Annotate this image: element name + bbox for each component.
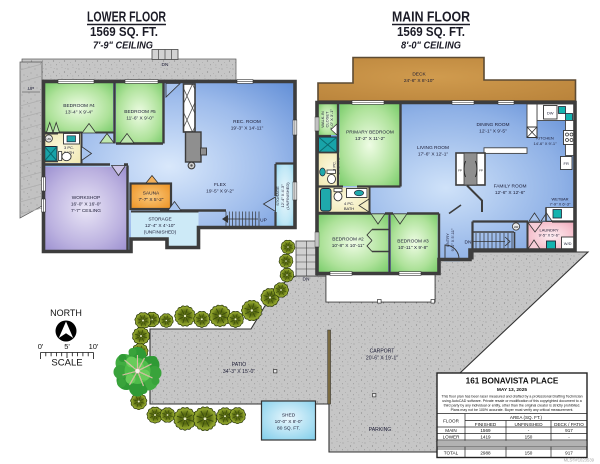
svg-text:2988: 2988: [480, 451, 491, 456]
svg-text:HW: HW: [514, 225, 519, 229]
svg-text:WORKSHOP: WORKSHOP: [72, 195, 101, 201]
svg-text:150: 150: [525, 435, 533, 440]
svg-text:BEDROOM #2: BEDROOM #2: [332, 237, 364, 243]
svg-text:(UNFINISHED): (UNFINISHED): [144, 230, 177, 236]
svg-text:DN: DN: [465, 240, 472, 246]
svg-text:7'-9" X 6'-3": 7'-9" X 6'-3": [550, 202, 571, 207]
svg-text:PARKING: PARKING: [369, 427, 392, 433]
svg-text:13'-4" X 9'-4": 13'-4" X 9'-4": [65, 110, 93, 116]
svg-text:FP: FP: [479, 169, 483, 173]
svg-text:MAIN: MAIN: [445, 428, 456, 433]
svg-text:STORAGE: STORAGE: [148, 217, 171, 223]
svg-text:9'-0" X 5'-11": 9'-0" X 5'-11": [450, 228, 455, 251]
svg-text:34'-3" X 15'-0": 34'-3" X 15'-0": [223, 369, 255, 375]
svg-text:FR: FR: [564, 161, 569, 166]
svg-text:BATH: BATH: [344, 206, 354, 211]
svg-text:PRIMARY BEDROOM: PRIMARY BEDROOM: [346, 130, 394, 136]
svg-text:11'-6" X 9'-0": 11'-6" X 9'-0": [126, 116, 154, 122]
svg-text:MAY 13, 2025: MAY 13, 2025: [497, 387, 527, 393]
svg-text:SCALE: SCALE: [51, 358, 82, 369]
svg-text:7'-7" X 5'-2": 7'-7" X 5'-2": [139, 197, 164, 203]
svg-text:DW: DW: [547, 111, 554, 116]
svg-text:PATIO: PATIO: [232, 362, 247, 368]
svg-text:using AutoCAD software. Privat: using AutoCAD software. Private resale o…: [442, 399, 581, 403]
svg-text:MLS®#1023539: MLS®#1023539: [564, 458, 595, 463]
svg-text:SAUNA: SAUNA: [143, 191, 160, 197]
svg-text:AREA (SQ. FT.): AREA (SQ. FT.): [510, 415, 543, 420]
svg-text:Plans may not be 100% accurate: Plans may not be 100% accurate. Buyer mu…: [451, 408, 574, 412]
svg-text:10'-0" X 8'-0": 10'-0" X 8'-0": [275, 419, 303, 425]
svg-text:917: 917: [565, 451, 573, 456]
svg-text:third party by any individual: third party by any individual or entity,…: [444, 404, 581, 408]
svg-text:DN: DN: [303, 277, 310, 283]
svg-text:SHED: SHED: [282, 413, 296, 419]
svg-text:12'-4" X 4'-10": 12'-4" X 4'-10": [145, 223, 176, 229]
svg-text:DINING ROOM: DINING ROOM: [476, 122, 509, 128]
svg-text:KITCHEN: KITCHEN: [536, 136, 554, 141]
svg-text:BEDROOM #4: BEDROOM #4: [63, 103, 95, 109]
svg-text:BEDROOM #5: BEDROOM #5: [124, 109, 156, 115]
svg-text:19'-3" X 14'-11": 19'-3" X 14'-11": [231, 126, 264, 132]
svg-text:1419: 1419: [480, 435, 491, 440]
svg-text:13'-2" X 11'-2": 13'-2" X 11'-2": [355, 136, 385, 142]
svg-text:80 SQ. FT.: 80 SQ. FT.: [277, 426, 300, 432]
svg-text:DECK: DECK: [412, 72, 426, 78]
svg-text:UP: UP: [28, 86, 35, 92]
svg-text:REC. ROOM: REC. ROOM: [233, 119, 261, 125]
svg-text:8'-0" CEILING: 8'-0" CEILING: [401, 40, 461, 52]
svg-text:This floor plan has been laser: This floor plan has been laser measured …: [441, 395, 582, 399]
svg-text:FLOOR: FLOOR: [443, 419, 460, 424]
svg-text:24'-6" X 8'-10": 24'-6" X 8'-10": [404, 78, 435, 84]
svg-text:20'-6" X 19'-1": 20'-6" X 19'-1": [366, 356, 398, 362]
svg-text:(UNFINISHED): (UNFINISHED): [285, 182, 290, 210]
svg-text:1569 SQ. FT.: 1569 SQ. FT.: [90, 24, 158, 39]
svg-text:17'-6" X 12'-1": 17'-6" X 12'-1": [418, 152, 449, 158]
svg-text:6'-0" X 3'-1": 6'-0" X 3'-1": [329, 109, 334, 130]
svg-text:HW: HW: [47, 137, 52, 141]
svg-text:10': 10': [89, 342, 99, 351]
svg-text:FINISHED: FINISHED: [475, 422, 497, 427]
svg-text:161 BONAVISTA PLACE: 161 BONAVISTA PLACE: [466, 377, 559, 386]
svg-text:150: 150: [525, 451, 533, 456]
svg-text:1569 SQ. FT.: 1569 SQ. FT.: [397, 24, 465, 39]
svg-text:917: 917: [565, 428, 573, 433]
svg-text:W/D: W/D: [564, 241, 572, 246]
svg-text:DN: DN: [162, 62, 169, 68]
svg-text:7'-9" CEILING: 7'-9" CEILING: [93, 40, 153, 52]
svg-text:LOWER: LOWER: [443, 435, 461, 440]
svg-text:16'-0" X 16'-0": 16'-0" X 16'-0": [71, 202, 102, 208]
svg-text:TOTAL: TOTAL: [444, 451, 459, 456]
svg-text:CARPORT: CARPORT: [370, 349, 395, 355]
svg-text:NORTH: NORTH: [50, 308, 82, 318]
svg-text:19'-5" X 9'-2": 19'-5" X 9'-2": [206, 189, 234, 195]
svg-text:0': 0': [38, 342, 44, 351]
svg-text:BEDROOM #3: BEDROOM #3: [397, 239, 429, 245]
svg-text:1569: 1569: [480, 428, 491, 433]
svg-text:5': 5': [64, 342, 70, 351]
svg-text:14'-6" X 9'-1": 14'-6" X 9'-1": [533, 141, 557, 146]
svg-text:FLEX: FLEX: [214, 182, 227, 188]
svg-text:7'-7" CEILING: 7'-7" CEILING: [71, 208, 101, 214]
svg-text:FP: FP: [458, 169, 462, 173]
svg-text:FAMILY ROOM: FAMILY ROOM: [494, 184, 527, 190]
svg-text:9'-5" X 5'-6": 9'-5" X 5'-6": [539, 233, 560, 238]
svg-text:12'-1" X 9'-5": 12'-1" X 9'-5": [479, 129, 507, 135]
svg-text:10'-8" X 10'-11": 10'-8" X 10'-11": [332, 243, 365, 249]
svg-text:UP: UP: [260, 218, 267, 224]
svg-text:10'-11" X 9'-8": 10'-11" X 9'-8": [398, 245, 428, 251]
svg-text:LIVING ROOM: LIVING ROOM: [417, 145, 449, 151]
svg-text:DECK / PATIO: DECK / PATIO: [554, 422, 584, 427]
svg-text:UNFINISHED: UNFINISHED: [514, 422, 543, 427]
svg-text:12'-6" X 12'-6": 12'-6" X 12'-6": [495, 190, 526, 196]
